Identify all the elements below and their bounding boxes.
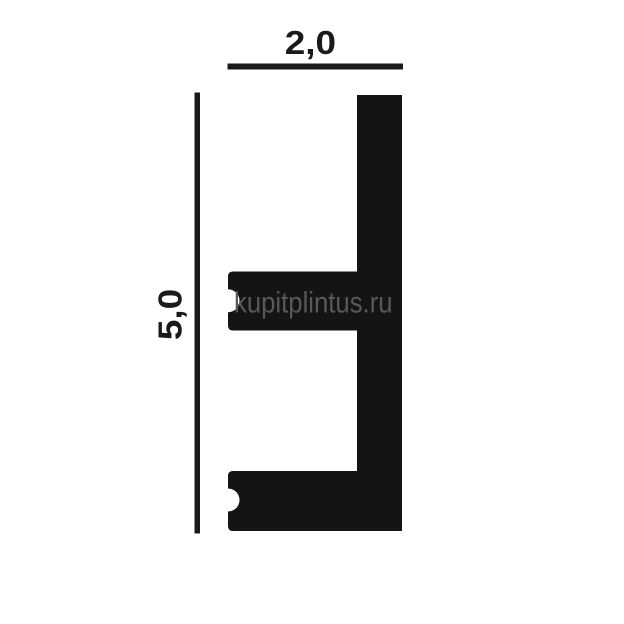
svg-text:kupitplintus.ru: kupitplintus.ru [234,286,393,319]
svg-text:2,0: 2,0 [285,25,336,62]
svg-text:5,0: 5,0 [152,289,189,340]
